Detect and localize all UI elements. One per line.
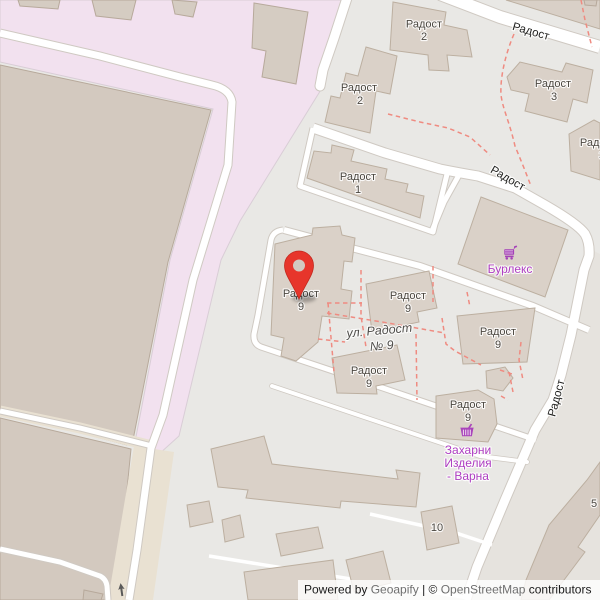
svg-text:Радост: Радост <box>406 19 442 31</box>
svg-text:9: 9 <box>298 301 304 313</box>
svg-text:- Варна: - Варна <box>447 469 489 483</box>
svg-text:3: 3 <box>551 91 557 103</box>
svg-text:9: 9 <box>366 378 372 390</box>
svg-text:9: 9 <box>465 412 471 424</box>
svg-text:Радост: Радост <box>340 171 376 183</box>
svg-text:Радост: Радост <box>351 365 387 377</box>
svg-text:Радост: Радост <box>480 326 516 338</box>
svg-text:Радост: Радост <box>390 290 426 302</box>
svg-text:Радост: Радост <box>580 137 600 149</box>
svg-text:2: 2 <box>357 95 363 107</box>
svg-text:2: 2 <box>421 31 427 43</box>
svg-text:1: 1 <box>355 184 361 196</box>
svg-text:10: 10 <box>431 522 443 534</box>
svg-text:5: 5 <box>591 498 597 510</box>
svg-text:9: 9 <box>495 339 501 351</box>
svg-text:Изделия: Изделия <box>444 456 491 470</box>
svg-text:№ 9: № 9 <box>369 338 394 354</box>
svg-text:Захарни: Захарни <box>445 443 491 457</box>
svg-text:Powered by Geoapify | © OpenSt: Powered by Geoapify | © OpenStreetMap co… <box>304 583 591 597</box>
svg-text:Радост: Радост <box>535 78 571 90</box>
svg-text:Радост: Радост <box>341 82 377 94</box>
svg-text:Радост: Радост <box>450 399 486 411</box>
svg-text:Бурлекс: Бурлекс <box>488 262 533 276</box>
svg-text:9: 9 <box>405 303 411 315</box>
